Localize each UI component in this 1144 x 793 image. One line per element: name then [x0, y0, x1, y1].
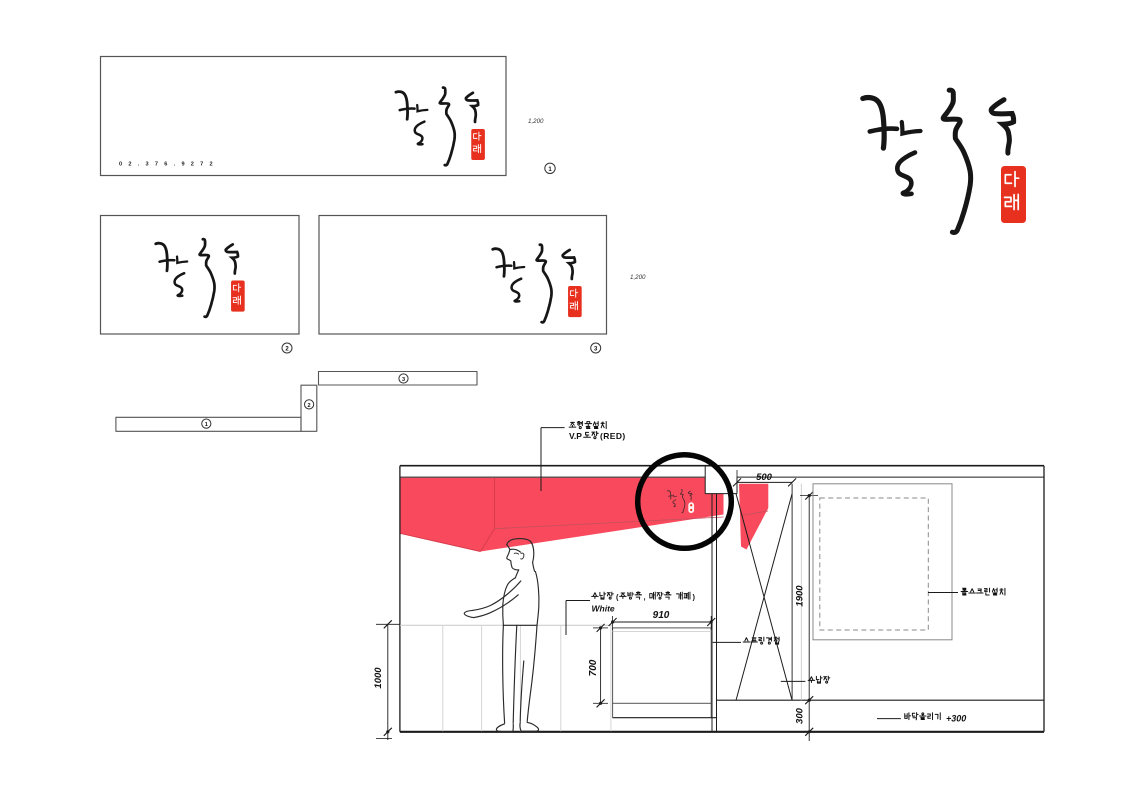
svg-text:910: 910 — [653, 610, 670, 621]
svg-text:(RED): (RED) — [600, 431, 626, 441]
svg-text:1000: 1000 — [373, 667, 384, 689]
svg-text:500: 500 — [756, 472, 773, 483]
svg-text:2: 2 — [308, 403, 311, 409]
svg-text:,: , — [644, 593, 646, 602]
svg-text:300: 300 — [795, 707, 806, 724]
svg-text:0 2 . 3 7 6 . 9 2 7 2: 0 2 . 3 7 6 . 9 2 7 2 — [119, 162, 215, 168]
svg-text:3: 3 — [402, 377, 405, 383]
svg-text:White: White — [592, 604, 615, 614]
svg-text:+300: +300 — [946, 714, 966, 724]
svg-text:1: 1 — [205, 422, 208, 428]
svg-text:V.P: V.P — [569, 431, 582, 441]
svg-text:1,200: 1,200 — [630, 274, 646, 281]
svg-text:1900: 1900 — [795, 585, 806, 607]
svg-text:700: 700 — [588, 659, 599, 676]
svg-text:1,200: 1,200 — [528, 118, 544, 125]
